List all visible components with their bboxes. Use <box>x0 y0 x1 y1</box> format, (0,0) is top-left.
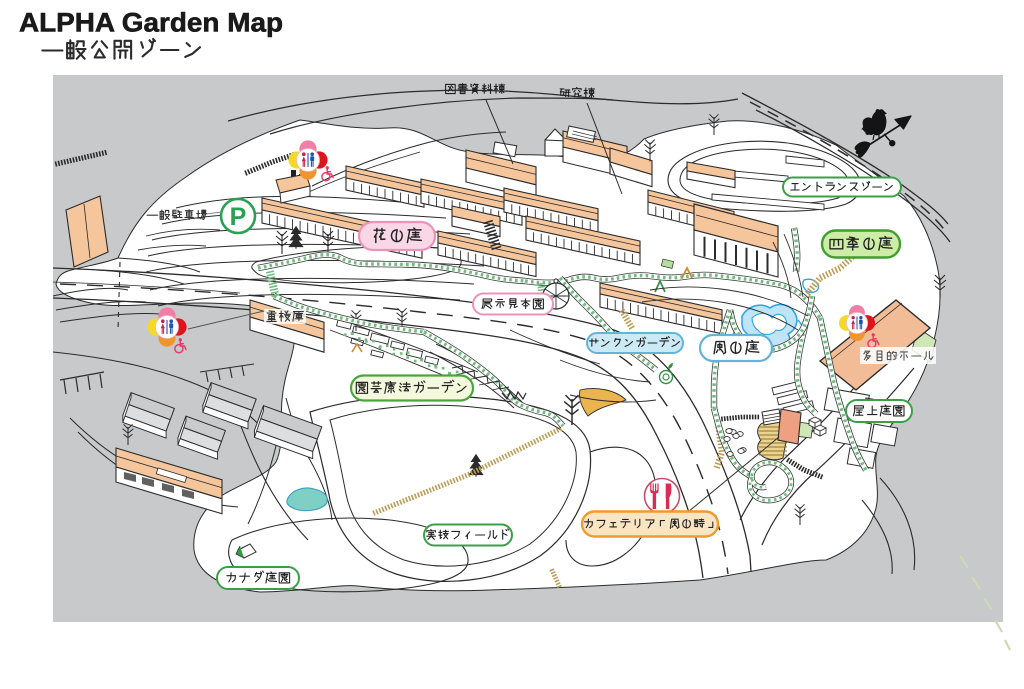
svg-text:ALPHA Garden Map: ALPHA Garden Map <box>19 8 283 38</box>
svg-text:P: P <box>230 203 247 231</box>
